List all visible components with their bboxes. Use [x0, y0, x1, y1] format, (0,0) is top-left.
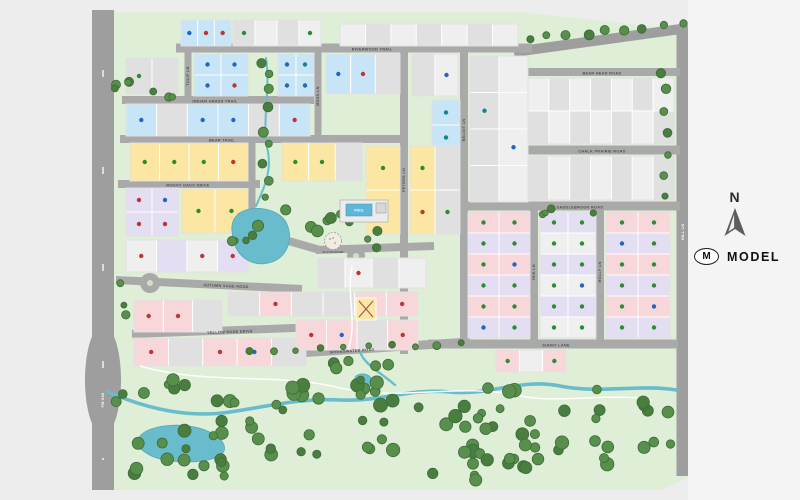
lot	[549, 156, 570, 200]
tree-icon	[389, 341, 396, 348]
lot	[528, 156, 549, 200]
tree-icon	[246, 417, 254, 425]
lot-status-dot	[285, 83, 289, 87]
lot-status-dot	[580, 304, 584, 308]
lot	[653, 78, 674, 111]
lot	[611, 111, 632, 144]
tree-icon	[661, 84, 671, 94]
tree-icon	[377, 435, 386, 444]
lot	[193, 300, 222, 332]
cul-de-sac-island	[147, 280, 153, 286]
tree-icon	[470, 474, 482, 486]
tree-icon	[344, 356, 353, 365]
tree-icon	[649, 437, 659, 447]
lot-status-dot	[205, 83, 209, 87]
lot	[157, 104, 188, 136]
lot-status-dot	[444, 110, 448, 114]
lot-status-dot	[445, 210, 449, 214]
tree-icon	[264, 176, 273, 185]
lot-status-dot	[512, 241, 516, 245]
lot-status-dot	[340, 333, 344, 337]
tree-icon	[530, 430, 539, 439]
tree-icon	[662, 406, 674, 418]
lot	[591, 78, 612, 111]
tree-icon	[504, 453, 515, 464]
tree-icon	[555, 436, 568, 449]
lot	[611, 156, 632, 200]
lot	[467, 24, 492, 46]
tree-icon	[520, 462, 532, 474]
lot	[357, 320, 388, 350]
north-arrow-icon	[721, 205, 749, 239]
lot-status-dot	[231, 160, 235, 164]
tree-icon	[665, 152, 672, 159]
lot-status-dot	[652, 241, 656, 245]
playground-equipment	[334, 242, 336, 244]
tree-icon	[561, 30, 570, 39]
playground-equipment	[329, 238, 331, 240]
tree-icon	[325, 213, 336, 224]
lot-status-dot	[481, 262, 485, 266]
tree-icon	[638, 441, 650, 453]
tree-icon	[358, 416, 367, 425]
tree-icon	[543, 32, 550, 39]
lot	[499, 166, 528, 203]
lot	[632, 78, 653, 111]
lot-status-dot	[481, 220, 485, 224]
tree-icon	[386, 443, 399, 456]
lot	[391, 24, 416, 46]
lot-status-dot	[231, 118, 235, 122]
tree-icon	[118, 390, 127, 399]
tree-icon	[547, 205, 555, 213]
lot-status-dot	[580, 241, 584, 245]
tree-icon	[370, 376, 383, 389]
lot-status-dot	[172, 160, 176, 164]
lot-status-dot	[196, 209, 200, 213]
lot	[228, 292, 260, 316]
street-name-label: INDIAN GRASS TRAIL	[192, 100, 238, 104]
tree-icon	[380, 418, 388, 426]
lot-status-dot	[512, 304, 516, 308]
tree-icon	[111, 85, 118, 92]
tree-icon	[602, 441, 614, 453]
tree-icon	[481, 454, 493, 466]
lot-status-dot	[293, 160, 297, 164]
street-name-label: BELOIT LN	[462, 119, 466, 142]
lot-status-dot	[552, 241, 556, 245]
lot	[570, 156, 591, 200]
tree-icon	[281, 205, 291, 215]
tree-icon	[179, 379, 190, 390]
tree-icon	[258, 127, 268, 137]
tree-icon	[365, 236, 371, 242]
lot	[152, 58, 178, 94]
tree-icon	[243, 237, 250, 244]
tree-icon	[265, 70, 273, 78]
lot	[611, 78, 632, 111]
legend-panel: N M MODEL	[688, 0, 800, 500]
lot-status-dot	[481, 325, 485, 329]
tree-icon	[386, 394, 399, 407]
tree-icon	[150, 88, 157, 95]
lot-status-dot	[482, 109, 486, 113]
lot	[375, 54, 400, 94]
tree-icon	[157, 438, 167, 448]
lot-status-dot	[163, 222, 167, 226]
tree-icon	[496, 405, 504, 413]
lot	[416, 24, 441, 46]
lot	[528, 111, 549, 144]
street-name-label: PETERS LN	[402, 168, 406, 192]
lot-status-dot	[229, 209, 233, 213]
tree-icon	[167, 374, 179, 386]
lot-status-dot	[204, 31, 208, 35]
tree-icon	[258, 159, 267, 168]
lot-status-dot	[512, 262, 516, 266]
lot-status-dot	[552, 325, 556, 329]
playground-equipment	[332, 237, 334, 239]
lot	[653, 111, 674, 144]
lot-status-dot	[400, 302, 404, 306]
lot-status-dot	[512, 325, 516, 329]
tree-icon	[266, 444, 276, 454]
lot-status-dot	[205, 62, 209, 66]
lot-status-dot	[444, 73, 448, 77]
tree-icon	[592, 414, 600, 422]
lot-status-dot	[308, 31, 312, 35]
lot	[499, 93, 528, 130]
lot-status-dot	[580, 220, 584, 224]
lot-status-dot	[200, 254, 204, 258]
tree-icon	[480, 423, 492, 435]
lot	[277, 20, 299, 46]
tree-icon	[209, 432, 217, 440]
lot-status-dot	[187, 31, 191, 35]
lot-status-dot	[512, 283, 516, 287]
tree-icon	[271, 348, 278, 355]
lot-status-dot	[444, 135, 448, 139]
tree-icon	[519, 439, 531, 451]
tree-icon	[663, 128, 672, 137]
lot	[549, 111, 570, 144]
pool-building	[376, 203, 386, 213]
street-name-label: HOLLY LN	[598, 262, 602, 283]
lot	[493, 24, 518, 46]
tree-icon	[188, 469, 198, 479]
lot	[372, 258, 399, 288]
tree-icon	[599, 454, 608, 463]
playground-label: PLAYGROUND	[322, 250, 344, 254]
tree-icon	[527, 36, 534, 43]
tree-icon	[662, 193, 668, 199]
street-name-label: SUNNY LANE	[542, 344, 570, 348]
street-name-label: BEAR TRAIL	[209, 139, 235, 143]
lot-status-dot	[139, 118, 143, 122]
tree-icon	[313, 450, 321, 458]
pool-label: POOL	[354, 209, 364, 213]
lot-status-dot	[620, 283, 624, 287]
lot-status-dot	[303, 83, 307, 87]
tree-icon	[117, 280, 124, 287]
lot	[365, 24, 390, 46]
lot-status-dot	[231, 254, 235, 258]
tree-icon	[473, 414, 483, 424]
lot	[591, 156, 612, 200]
tree-icon	[111, 397, 121, 407]
lot-status-dot	[137, 74, 141, 78]
lot	[570, 111, 591, 144]
legend-model: M MODEL	[694, 248, 780, 265]
tree-icon	[121, 302, 127, 308]
tree-icon	[265, 140, 272, 147]
lot-status-dot	[232, 83, 236, 87]
lot-status-dot	[505, 359, 509, 363]
lot-status-dot	[652, 304, 656, 308]
lot-status-dot	[420, 166, 424, 170]
lot	[632, 111, 653, 144]
lot-status-dot	[481, 304, 485, 308]
lot-status-dot	[652, 220, 656, 224]
tree-icon	[428, 468, 438, 478]
lot-status-dot	[220, 31, 224, 35]
tree-icon	[458, 446, 470, 458]
model-symbol: M	[694, 248, 719, 265]
street-name-label: RIVERWOOD TRAIL	[352, 48, 393, 52]
lot-status-dot	[381, 166, 385, 170]
lot-status-dot	[232, 62, 236, 66]
lot-status-dot	[320, 160, 324, 164]
tree-icon	[182, 445, 190, 453]
tree-icon	[532, 453, 544, 465]
tree-icon	[483, 383, 494, 394]
street-name-label: SADDLEBROOK ROAD	[557, 206, 604, 210]
tree-icon	[362, 442, 372, 452]
compass-north-label: N	[716, 190, 754, 204]
tree-icon	[412, 344, 418, 350]
lot	[519, 350, 542, 372]
lot	[632, 156, 653, 200]
lot	[168, 338, 202, 366]
lot-status-dot	[552, 283, 556, 287]
tree-icon	[680, 20, 687, 27]
lot-status-dot	[137, 222, 141, 226]
lot	[291, 292, 323, 316]
lot	[340, 24, 365, 46]
lot-status-dot	[620, 241, 624, 245]
tree-icon	[286, 381, 299, 394]
tree-icon	[262, 194, 268, 200]
tree-icon	[559, 405, 571, 417]
street-name-label: IRIS LN	[532, 264, 536, 280]
tree-icon	[227, 236, 236, 245]
tree-icon	[297, 448, 305, 456]
tree-icon	[252, 220, 263, 231]
street-name-label: MOSS LN	[316, 86, 320, 105]
lot-status-dot	[309, 333, 313, 337]
tree-icon	[230, 398, 239, 407]
site-map: POOLPLAYGROUNDFM 646HILL LNRIVERWOOD TRA…	[0, 0, 800, 500]
lot-status-dot	[580, 283, 584, 287]
tree-icon	[304, 430, 314, 440]
tree-icon	[217, 458, 226, 467]
tree-icon	[257, 59, 266, 68]
tree-icon	[620, 26, 629, 35]
tree-icon	[357, 376, 365, 384]
lot	[255, 20, 277, 46]
tree-icon	[263, 102, 273, 112]
lot-status-dot	[620, 304, 624, 308]
tree-icon	[525, 416, 536, 427]
tree-icon	[220, 472, 228, 480]
lot	[435, 146, 460, 190]
lot-status-dot	[652, 283, 656, 287]
lot-status-dot	[163, 198, 167, 202]
lot	[399, 258, 426, 288]
tree-icon	[312, 225, 324, 237]
street-name-label: FM 646	[101, 393, 105, 408]
compass: N	[716, 190, 754, 239]
lot-status-dot	[620, 262, 624, 266]
street-name-label: CHALK PRAIRIE ROAD	[578, 150, 625, 154]
lot-status-dot	[552, 304, 556, 308]
lot-status-dot	[420, 210, 424, 214]
lot-status-dot	[139, 254, 143, 258]
tree-icon	[248, 231, 257, 240]
lot-status-dot	[336, 72, 340, 76]
lot	[157, 240, 188, 272]
lot-status-dot	[303, 62, 307, 66]
lot-status-dot	[552, 359, 556, 363]
lot-status-dot	[552, 262, 556, 266]
lot-status-dot	[652, 262, 656, 266]
lot-status-dot	[143, 160, 147, 164]
lot	[318, 258, 345, 288]
lot	[412, 54, 435, 96]
lot-status-dot	[361, 72, 365, 76]
tree-icon	[178, 454, 190, 466]
lot-status-dot	[356, 271, 360, 275]
tree-icon	[211, 395, 223, 407]
lot	[570, 78, 591, 111]
tree-icon	[458, 400, 470, 412]
lot	[470, 166, 499, 203]
tree-icon	[584, 30, 594, 40]
tree-icon	[590, 436, 601, 447]
tree-icon	[132, 437, 144, 449]
tree-icon	[433, 342, 441, 350]
lot	[470, 129, 499, 166]
tree-icon	[374, 398, 388, 412]
lot-status-dot	[176, 314, 180, 318]
tree-icon	[246, 348, 253, 355]
lot-status-dot	[137, 198, 141, 202]
lot-status-dot	[401, 333, 405, 337]
tree-icon	[317, 345, 324, 352]
lot-status-dot	[218, 350, 222, 354]
street-name-label: TULIP LN	[186, 66, 190, 85]
lot-status-dot	[149, 350, 153, 354]
lot-status-dot	[511, 145, 515, 149]
tree-icon	[660, 172, 668, 180]
tree-icon	[530, 443, 539, 452]
tree-icon	[122, 311, 130, 319]
tree-icon	[371, 361, 381, 371]
tree-icon	[383, 359, 394, 370]
lot-status-dot	[202, 160, 206, 164]
tree-icon	[600, 25, 609, 34]
lot-status-dot	[285, 62, 289, 66]
tree-icon	[125, 79, 132, 86]
lot-status-dot	[273, 302, 277, 306]
tree-icon	[593, 385, 602, 394]
lot-status-dot	[292, 118, 296, 122]
tree-icon	[637, 25, 646, 34]
tree-icon	[313, 393, 324, 404]
lot	[470, 56, 499, 93]
tree-icon	[666, 440, 674, 448]
tree-icon	[373, 244, 380, 251]
street-name-label: HILL LN	[681, 224, 685, 241]
tree-icon	[169, 94, 176, 101]
tree-icon	[178, 424, 191, 437]
tree-icon	[660, 108, 668, 116]
street-name-label: BEAR HEAD ROAD	[582, 72, 621, 76]
tree-icon	[199, 461, 209, 471]
tree-icon	[637, 396, 649, 408]
tree-icon	[503, 385, 517, 399]
lot-status-dot	[620, 220, 624, 224]
lot	[591, 111, 612, 144]
lot-status-dot	[652, 325, 656, 329]
lot-status-dot	[620, 325, 624, 329]
lot	[442, 24, 467, 46]
tree-icon	[279, 406, 287, 414]
tree-icon	[264, 84, 273, 93]
lot-status-dot	[512, 220, 516, 224]
tree-icon	[216, 415, 227, 426]
tree-icon	[660, 21, 667, 28]
lot-status-dot	[481, 241, 485, 245]
model-label: MODEL	[727, 250, 780, 264]
tree-icon	[130, 462, 143, 475]
tree-icon	[516, 428, 529, 441]
lot	[549, 78, 570, 111]
tree-icon	[252, 433, 264, 445]
tree-icon	[293, 348, 299, 354]
lot-status-dot	[580, 325, 584, 329]
lot-status-dot	[200, 118, 204, 122]
lot-status-dot	[242, 31, 246, 35]
lot	[528, 78, 549, 111]
tree-icon	[331, 363, 342, 374]
tree-icon	[373, 226, 382, 235]
tree-icon	[138, 388, 149, 399]
lot	[499, 56, 528, 93]
lot-status-dot	[481, 283, 485, 287]
tree-icon	[458, 340, 464, 346]
lot	[335, 143, 362, 181]
tree-icon	[468, 458, 479, 469]
tree-icon	[356, 390, 365, 399]
lot-status-dot	[552, 220, 556, 224]
lot-status-dot	[146, 314, 150, 318]
street-name-label: MOSSY OAKS DRIVE	[166, 184, 209, 188]
tree-icon	[656, 69, 665, 78]
playground-area	[325, 233, 342, 250]
tree-icon	[460, 421, 471, 432]
tree-icon	[414, 403, 423, 412]
